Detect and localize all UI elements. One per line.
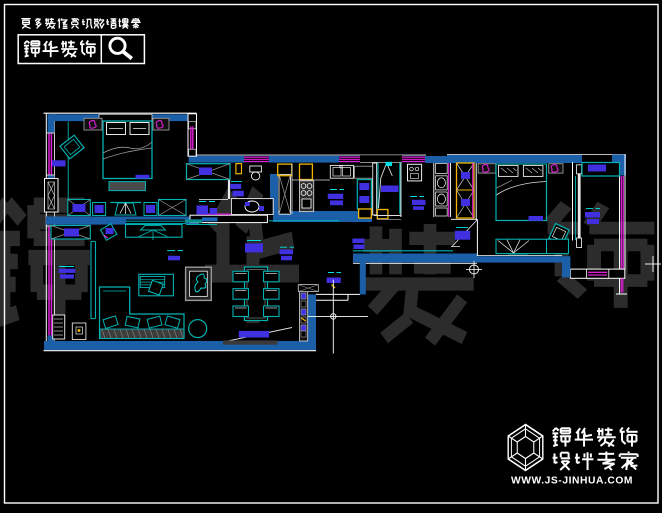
svg-text:WWW.JS-JINHUA.COM: WWW.JS-JINHUA.COM	[511, 476, 633, 487]
